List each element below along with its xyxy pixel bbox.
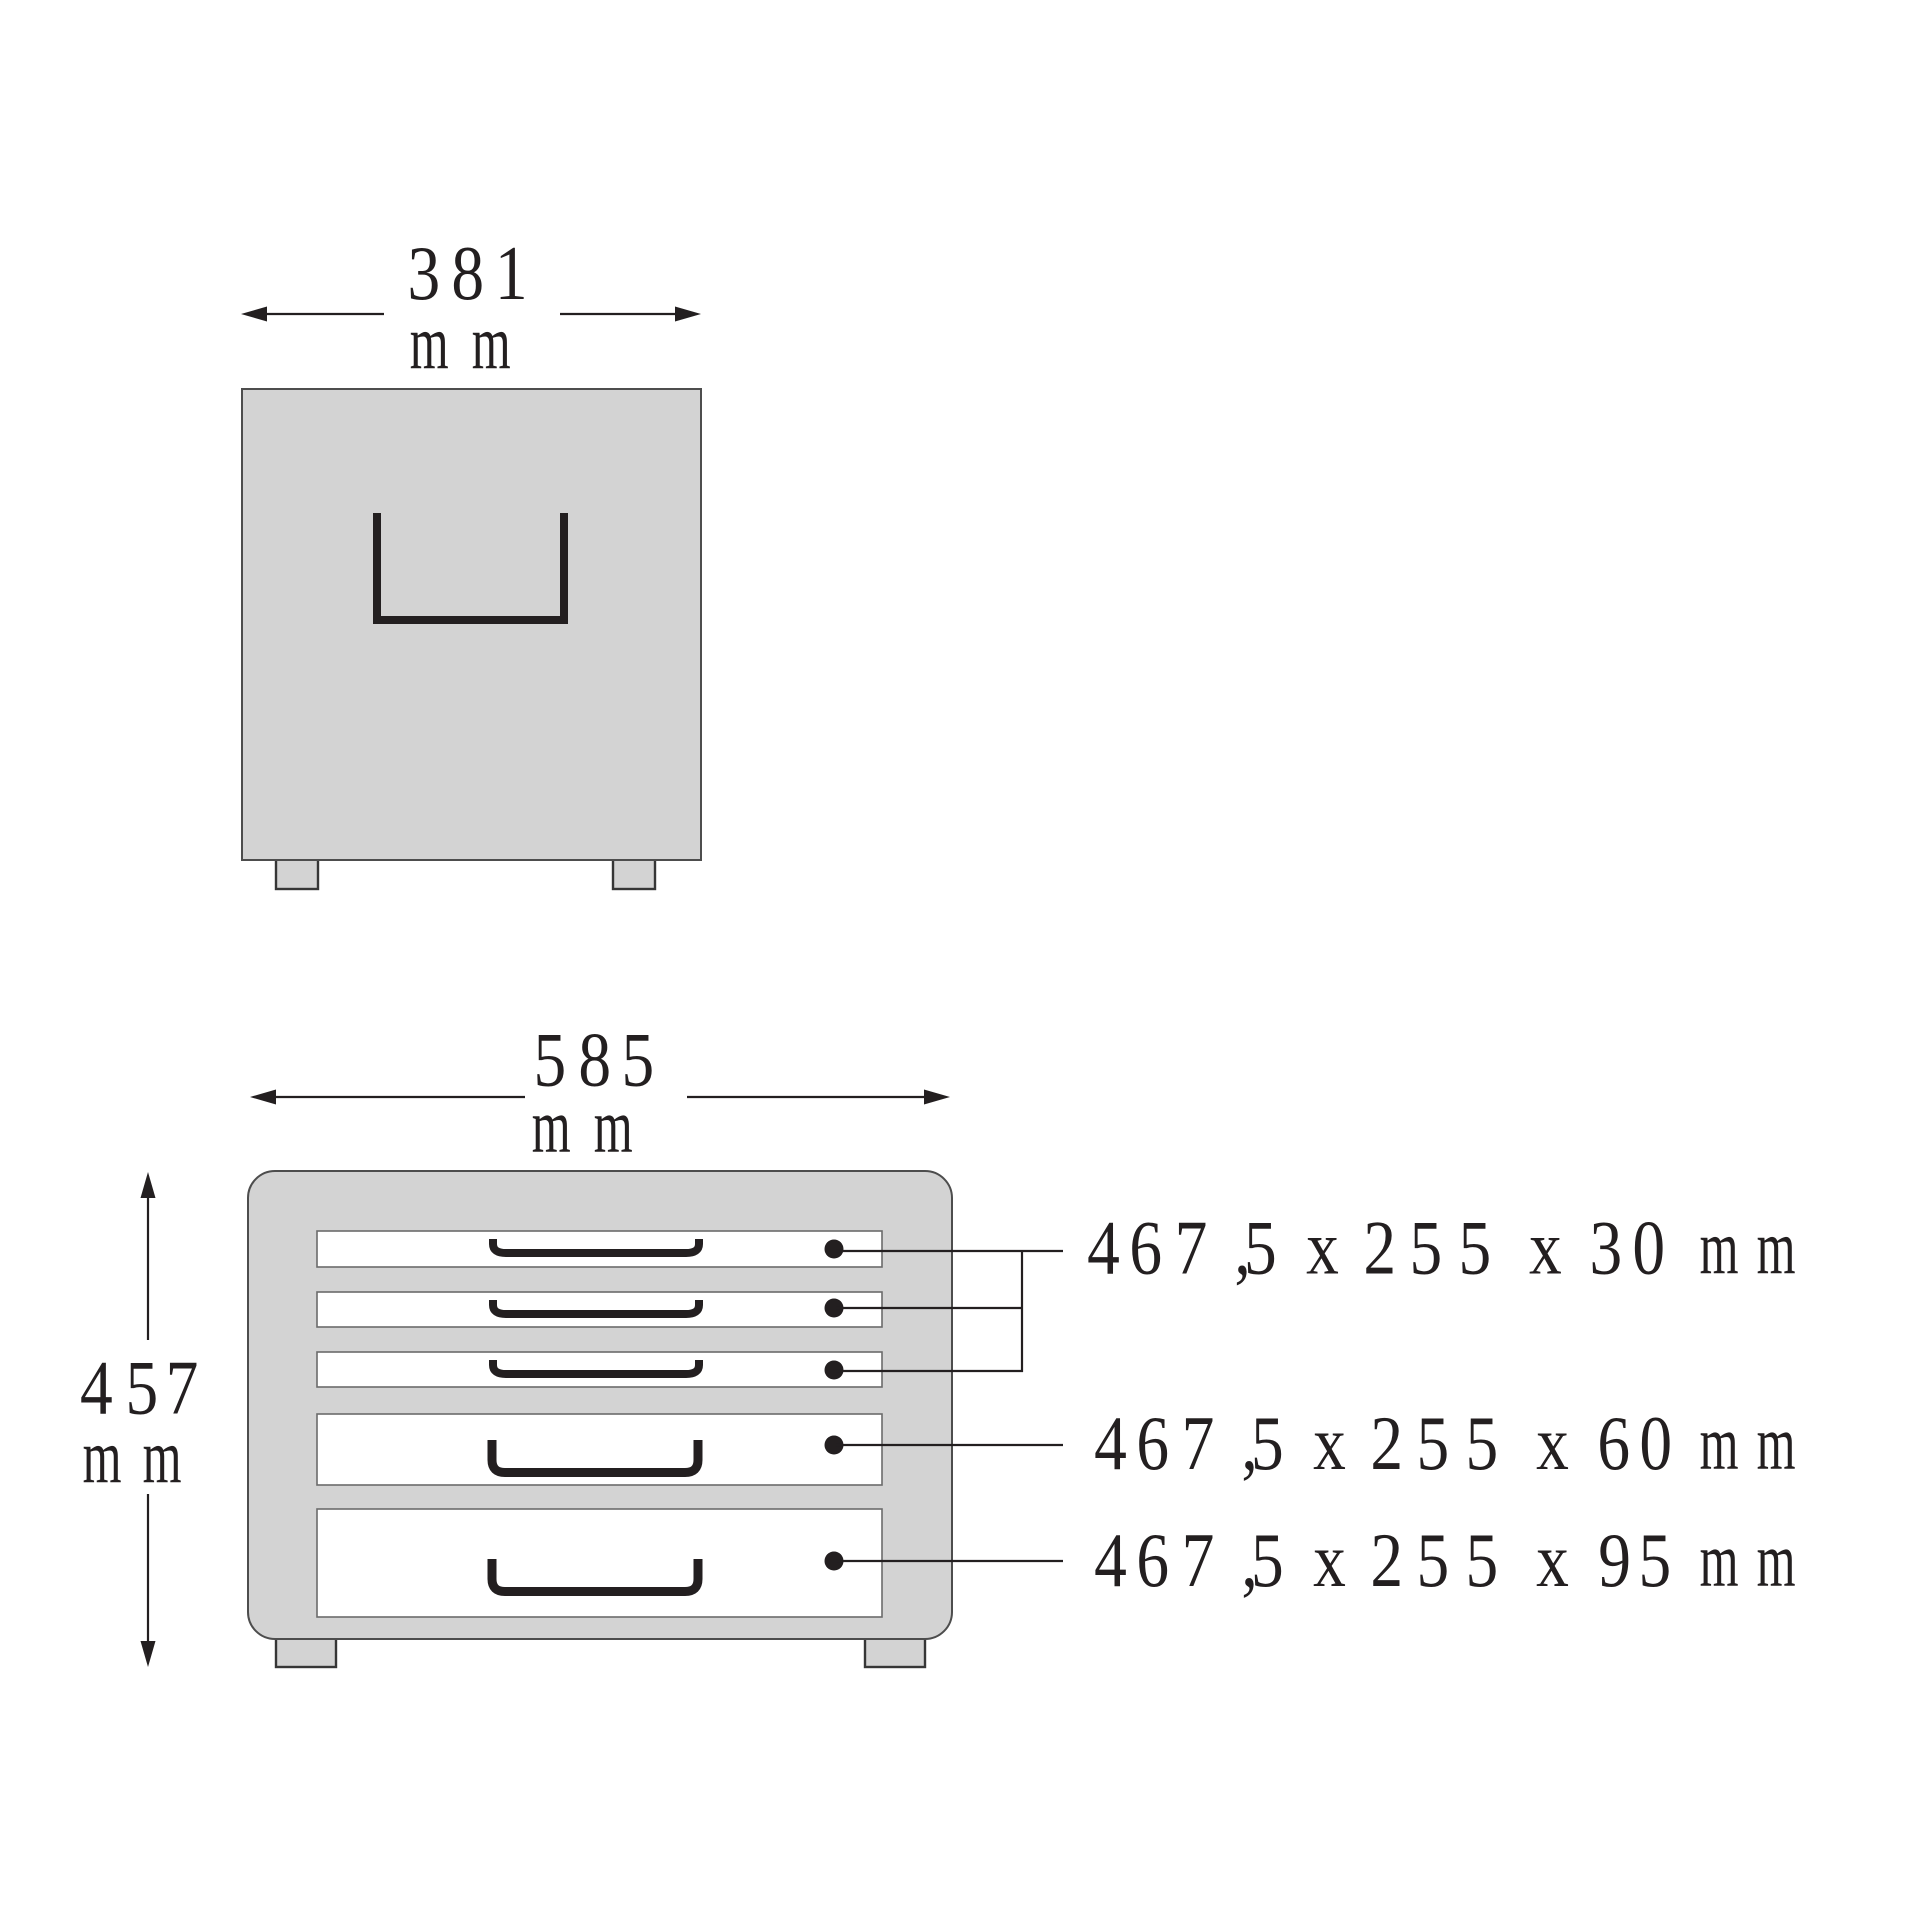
svg-text:mm: mm	[1700, 1206, 1796, 1291]
svg-text:467,5x255x60: 467,5x255x60	[1094, 1401, 1672, 1486]
svg-text:467,5x255x30: 467,5x255x30	[1087, 1206, 1665, 1291]
svg-text:467,5x255x95: 467,5x255x95	[1094, 1518, 1671, 1603]
svg-text:mm: mm	[1700, 1401, 1796, 1486]
svg-text:mm: mm	[1700, 1518, 1796, 1603]
